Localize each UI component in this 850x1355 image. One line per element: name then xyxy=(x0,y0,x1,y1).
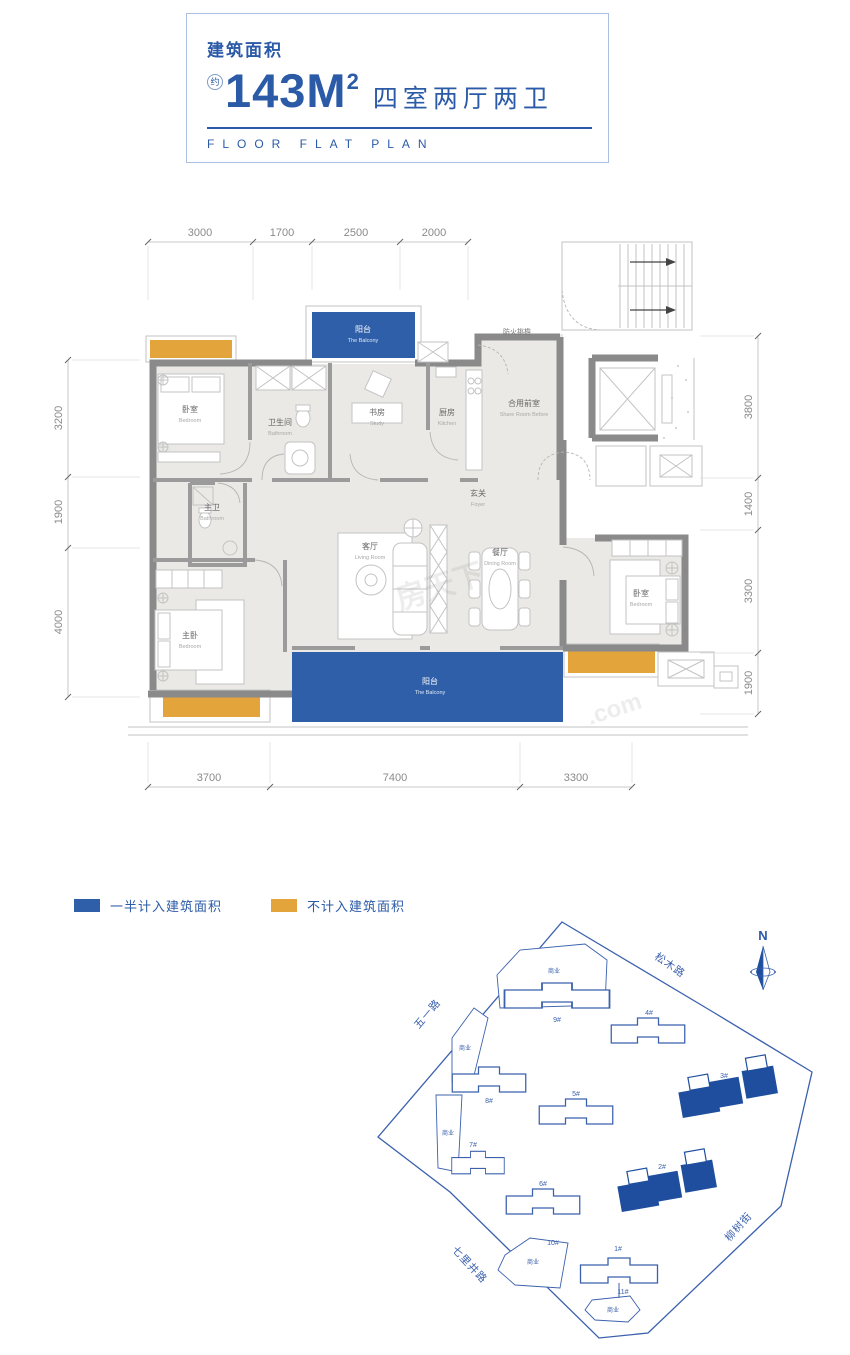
dim-right-2: 3300 xyxy=(743,579,755,603)
page: 建筑面积 约 143M 2 四室两厅两卫 FLOOR FLAT PLAN xyxy=(0,0,850,1355)
dim-top-1: 1700 xyxy=(270,227,294,239)
label-fire-eave: 防火挑檐 xyxy=(503,327,531,336)
building-label-8: 8# xyxy=(485,1098,493,1105)
label-share-room-cn: 合用前室 xyxy=(508,398,540,408)
approx-mark: 约 xyxy=(207,74,223,90)
dim-left-2: 4000 xyxy=(53,610,65,634)
label-foyer-en: Foyer xyxy=(471,502,485,508)
building-label-11: 11# xyxy=(617,1289,628,1296)
label-balcony-top-en: The Balcony xyxy=(348,338,379,344)
label-kitchen-cn: 厨房 xyxy=(439,407,455,417)
label-study-cn: 书房 xyxy=(369,407,385,417)
dim-top-3: 2000 xyxy=(422,227,446,239)
road-wuyi: 五一路 xyxy=(411,996,443,1031)
building-label-4: 4# xyxy=(645,1010,653,1017)
label-living-cn: 客厅 xyxy=(362,541,378,551)
label-living-en: Living Room xyxy=(355,555,386,561)
label-balcony-top-cn: 阳台 xyxy=(355,324,371,334)
building-label-2: 2# xyxy=(658,1164,666,1171)
title-box: 建筑面积 约 143M 2 四室两厅两卫 FLOOR FLAT PLAN xyxy=(186,13,609,163)
legend-swatch-half xyxy=(74,899,100,912)
label-balcony-btm-cn: 阳台 xyxy=(422,676,438,686)
tl-orange-strip xyxy=(150,340,232,358)
label-dining-en: Dining Room xyxy=(484,561,516,567)
legend: 一半计入建筑面积 不计入建筑面积 xyxy=(74,896,405,915)
site-buildings-outline xyxy=(452,983,685,1298)
north-label: N xyxy=(758,928,767,943)
top-balcony xyxy=(312,312,415,358)
dim-bottom-1: 7400 xyxy=(383,772,407,784)
title-divider xyxy=(207,127,592,129)
dim-top-0: 3000 xyxy=(188,227,212,239)
label-share-room-en: Share Room Before xyxy=(500,412,549,418)
commercial-label-5: 商业 xyxy=(607,1306,619,1314)
label-dining-cn: 餐厅 xyxy=(492,548,508,557)
elevator xyxy=(596,358,702,486)
commercial-label-1: 商业 xyxy=(548,967,560,975)
road-liushu: 柳树街 xyxy=(722,1209,755,1243)
building-label-10: 10# xyxy=(547,1240,559,1247)
label-bedroom-tl-cn: 卧室 xyxy=(182,404,198,414)
legend-label-half: 一半计入建筑面积 xyxy=(110,896,222,915)
label-kitchen-en: Kitchen xyxy=(438,421,456,427)
commercial-label-4: 商业 xyxy=(527,1258,539,1266)
label-master-bed-en: Bedroom xyxy=(179,644,202,650)
commercial-label-2: 商业 xyxy=(459,1044,471,1052)
dim-right-3: 1900 xyxy=(743,671,755,695)
dim-top-2: 2500 xyxy=(344,227,368,239)
building-label-1: 1# xyxy=(614,1246,622,1253)
label-master-bath-cn: 主卫 xyxy=(204,502,220,512)
building-2-shape xyxy=(614,1148,719,1212)
legend-swatch-none xyxy=(271,899,297,912)
area-superscript: 2 xyxy=(347,69,359,95)
north-compass: N xyxy=(750,928,776,990)
label-master-bath-en: Bathroom xyxy=(200,516,224,522)
bl-orange-strip xyxy=(163,695,260,717)
building-3-shape xyxy=(675,1054,780,1118)
siteplan: 9# 4# 8# 5# 3# 7# 6# 2# 10# 1# 11# 商业 商业… xyxy=(370,905,850,1355)
area-value: 143M xyxy=(225,63,347,118)
label-bathroom-en: Bathroom xyxy=(268,431,292,437)
label-bathroom-cn: 卫生间 xyxy=(268,417,292,427)
dim-bottom-2: 3300 xyxy=(564,772,588,784)
floorplan: 阳台 The Balcony 防火挑檐 卧室 Bedroom 卫生间 Bathr… xyxy=(0,220,850,840)
label-study-en: Study xyxy=(370,421,384,427)
label-master-bed-cn: 主卧 xyxy=(182,630,198,640)
watermark-com: .com xyxy=(584,688,646,731)
site-buildings-highlighted xyxy=(614,1054,780,1212)
title-subtitle: FLOOR FLAT PLAN xyxy=(207,137,608,151)
dim-right-0: 3800 xyxy=(743,395,755,419)
label-balcony-btm-en: The Balcony xyxy=(415,690,446,696)
area-label: 建筑面积 xyxy=(207,36,608,61)
label-foyer-cn: 玄关 xyxy=(470,488,486,498)
rooms-spec: 四室两厅两卫 xyxy=(373,79,553,115)
label-bedroom-r-cn: 卧室 xyxy=(633,588,649,598)
road-qilijing: 七里井路 xyxy=(449,1243,490,1286)
building-label-3: 3# xyxy=(720,1073,728,1080)
label-bedroom-tl-en: Bedroom xyxy=(179,418,202,424)
dim-bottom-0: 3700 xyxy=(197,772,221,784)
dim-right-1: 1400 xyxy=(743,492,755,516)
r-orange-strip xyxy=(568,648,655,673)
dim-left-1: 1900 xyxy=(53,500,65,524)
commercial-label-3: 商业 xyxy=(442,1129,454,1137)
building-label-5: 5# xyxy=(572,1091,580,1098)
stairwell xyxy=(562,242,692,330)
building-label-7: 7# xyxy=(469,1142,477,1149)
bottom-balcony xyxy=(292,652,563,722)
building-label-9: 9# xyxy=(553,1017,561,1024)
road-songmu: 松木路 xyxy=(652,950,688,980)
dim-left-0: 3200 xyxy=(53,406,65,430)
label-bedroom-r-en: Bedroom xyxy=(630,602,653,608)
area-line: 约 143M 2 四室两厅两卫 xyxy=(207,63,608,118)
building-label-6: 6# xyxy=(539,1181,547,1188)
